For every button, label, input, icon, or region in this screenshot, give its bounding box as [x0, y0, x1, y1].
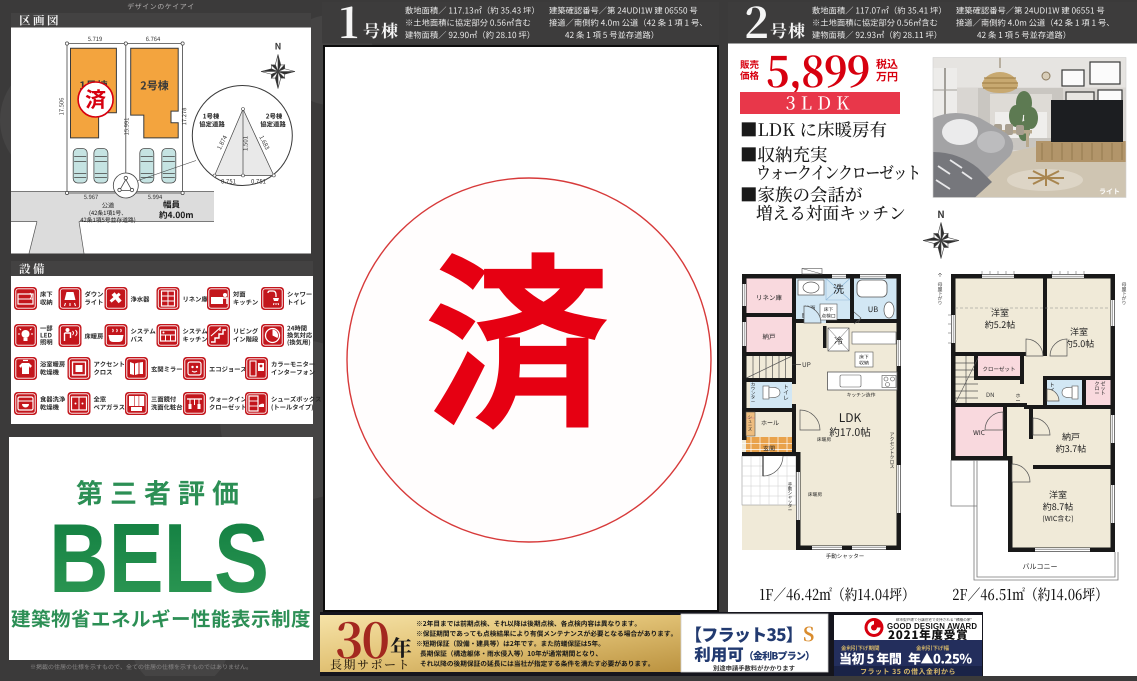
- svg-text:GOOD DESIGN AWARD: GOOD DESIGN AWARD: [887, 622, 977, 631]
- svg-text:BELS: BELS: [49, 503, 269, 613]
